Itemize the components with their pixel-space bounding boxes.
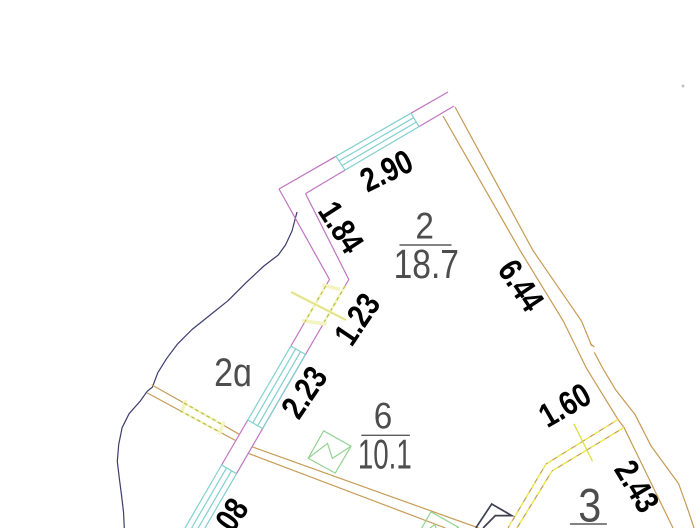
svg-text:2ɑ: 2ɑ <box>214 351 252 395</box>
svg-text:1.84: 1.84 <box>311 195 371 260</box>
svg-text:3: 3 <box>578 480 601 528</box>
svg-text:2.90: 2.90 <box>354 143 418 200</box>
svg-text:18.7: 18.7 <box>394 241 459 287</box>
svg-text:10.1: 10.1 <box>358 431 412 478</box>
svg-text:1.23: 1.23 <box>327 287 388 352</box>
svg-text:2.43: 2.43 <box>607 454 666 519</box>
svg-text:1.60: 1.60 <box>533 376 598 435</box>
svg-text:2.08: 2.08 <box>195 492 256 528</box>
